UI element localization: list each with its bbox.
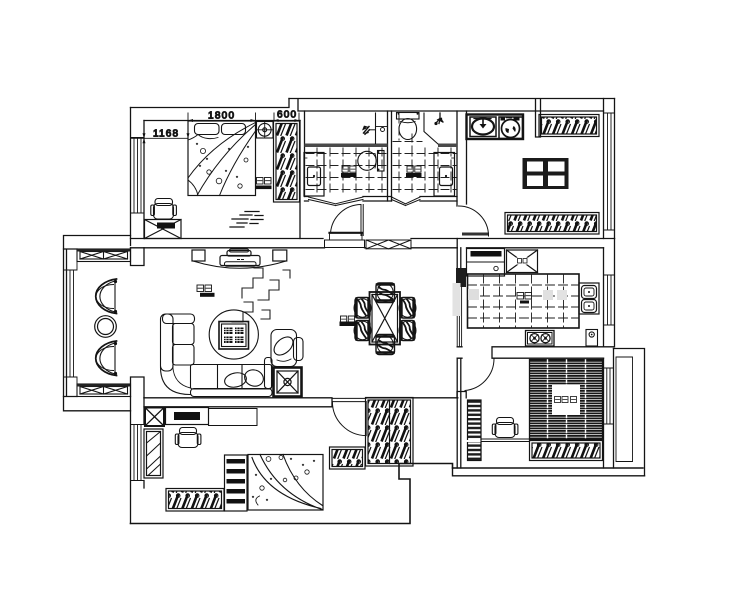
- svg-text:600: 600: [277, 110, 296, 121]
- svg-text:1800: 1800: [208, 111, 234, 122]
- svg-text:1168: 1168: [153, 129, 178, 140]
